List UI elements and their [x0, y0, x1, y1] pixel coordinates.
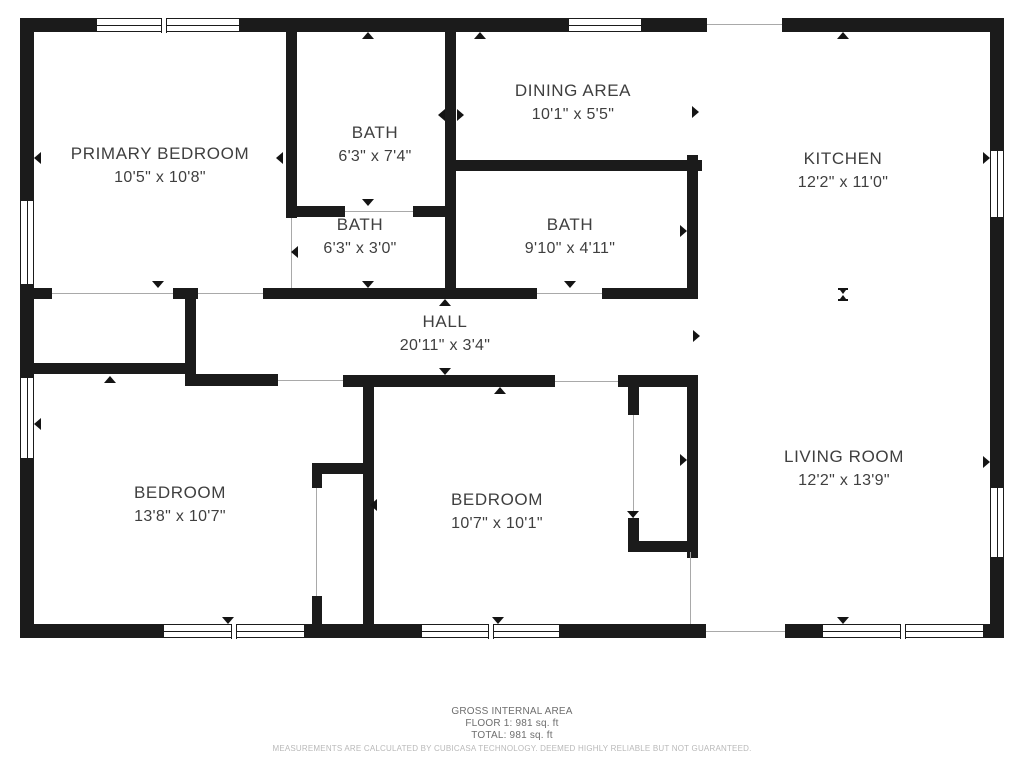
opening-marker-icon [222, 617, 234, 624]
room-label-bath-middle: BATH 9'10" x 4'11" [525, 212, 615, 260]
wall-closet [628, 387, 639, 415]
opening-marker-icon [492, 617, 504, 624]
open-boundary-marker-icon [838, 288, 848, 301]
room-label-bedroom-middle: BEDROOM 10'7" x 10'1" [451, 487, 543, 535]
room-label-primary-bedroom: PRIMARY BEDROOM 10'5" x 10'8" [71, 141, 249, 189]
opening-line [706, 631, 785, 632]
window-divider [161, 18, 167, 33]
wall-exterior-left [20, 18, 34, 200]
wall-interior [343, 375, 555, 387]
floor-area-line: FLOOR 1: 981 sq. ft [0, 718, 1024, 730]
room-dims: 12'2" x 13'9" [784, 469, 904, 492]
wall-interior [34, 288, 52, 299]
room-dims: 9'10" x 4'11" [525, 237, 615, 260]
room-name: HALL [400, 309, 490, 334]
wall-closet [639, 541, 691, 552]
opening-marker-icon [34, 418, 41, 430]
opening-marker-icon [152, 281, 164, 288]
room-dims: 20'11" x 3'4" [400, 334, 490, 357]
opening-line [278, 380, 343, 381]
room-label-bedroom-left: BEDROOM 13'8" x 10'7" [134, 480, 226, 528]
room-dims: 13'8" x 10'7" [134, 505, 226, 528]
opening-marker-icon [439, 368, 451, 375]
wall-closet [312, 596, 322, 624]
opening-line [52, 293, 173, 294]
opening-marker-icon [362, 281, 374, 288]
wall-interior [602, 288, 698, 299]
room-name: BEDROOM [134, 480, 226, 505]
opening-marker-icon [474, 32, 486, 39]
window-divider [900, 624, 906, 639]
window [822, 624, 984, 638]
wall-interior [263, 288, 537, 299]
opening-line [537, 293, 602, 294]
room-label-dining-area: DINING AREA 10'1" x 5'5" [515, 78, 631, 126]
wall-closet [628, 518, 639, 552]
gross-internal-area-title: GROSS INTERNAL AREA [0, 706, 1024, 718]
wall-interior [687, 155, 698, 299]
wall-exterior-right [990, 18, 1004, 150]
opening-marker-icon [837, 32, 849, 39]
opening-marker-icon [983, 456, 990, 468]
wall-interior [185, 288, 196, 375]
room-label-bath-top: BATH 6'3" x 7'4" [338, 120, 411, 168]
wall-exterior-top [642, 18, 707, 32]
opening-marker-icon [362, 199, 374, 206]
room-dims: 6'3" x 7'4" [338, 145, 411, 168]
opening-line [707, 24, 782, 25]
opening-marker-icon [104, 376, 116, 383]
opening-marker-icon [439, 299, 451, 306]
room-name: BATH [525, 212, 615, 237]
total-area-line: TOTAL: 981 sq. ft [0, 730, 1024, 742]
opening-marker-icon [627, 511, 639, 518]
footer: GROSS INTERNAL AREA FLOOR 1: 981 sq. ft … [0, 706, 1024, 754]
wall-exterior-bottom [984, 624, 1004, 638]
disclaimer-text: MEASUREMENTS ARE CALCULATED BY CUBICASA … [0, 744, 1024, 754]
room-label-kitchen: KITCHEN 12'2" x 11'0" [798, 146, 888, 194]
window [990, 150, 1004, 218]
opening-marker-icon [983, 152, 990, 164]
wall-closet [312, 463, 363, 474]
wall-exterior-bottom [785, 624, 822, 638]
window [990, 487, 1004, 558]
wall-interior [453, 160, 702, 171]
room-dims: 10'5" x 10'8" [71, 166, 249, 189]
opening-marker-icon [680, 454, 687, 466]
room-label-hall: HALL 20'11" x 3'4" [400, 309, 490, 357]
window [421, 624, 560, 638]
wall-exterior-bottom [20, 624, 163, 638]
wall-interior [34, 363, 196, 374]
room-dims: 10'7" x 10'1" [451, 512, 543, 535]
wall-exterior-bottom [560, 624, 706, 638]
wall-exterior-top [782, 18, 1004, 32]
wall-interior [687, 375, 698, 558]
opening-marker-icon [291, 246, 298, 258]
room-name: PRIMARY BEDROOM [71, 141, 249, 166]
room-name: DINING AREA [515, 78, 631, 103]
room-name: LIVING ROOM [784, 444, 904, 469]
room-dims: 6'3" x 3'0" [323, 237, 396, 260]
opening-marker-icon [693, 330, 700, 342]
room-name: KITCHEN [798, 146, 888, 171]
room-label-living-room: LIVING ROOM 12'2" x 13'9" [784, 444, 904, 492]
wall-exterior-top [240, 18, 568, 32]
opening-marker-icon [692, 106, 699, 118]
room-name: BEDROOM [451, 487, 543, 512]
opening-line [690, 552, 691, 624]
room-name: BATH [338, 120, 411, 145]
wall-interior [618, 375, 698, 387]
wall-interior [185, 374, 278, 386]
window [96, 18, 240, 32]
window [568, 18, 642, 32]
wall-closet [312, 474, 322, 488]
opening-marker-icon [457, 109, 464, 121]
wall-exterior-right [990, 218, 1004, 487]
window-divider [488, 624, 494, 639]
window [20, 377, 34, 459]
opening-marker-icon [680, 225, 687, 237]
opening-marker-icon [564, 281, 576, 288]
window-divider [231, 624, 237, 639]
room-label-bath-small: BATH 6'3" x 3'0" [323, 212, 396, 260]
wall-exterior-left [20, 459, 34, 638]
opening-marker-icon [34, 152, 41, 164]
room-dims: 12'2" x 11'0" [798, 171, 888, 194]
wall-exterior-left [20, 285, 34, 377]
opening-marker-icon [370, 499, 377, 511]
wall-interior [286, 32, 297, 218]
opening-line [555, 381, 618, 382]
opening-marker-icon [837, 617, 849, 624]
room-dims: 10'1" x 5'5" [515, 103, 631, 126]
opening-line [316, 488, 317, 596]
opening-marker-icon [494, 387, 506, 394]
window [20, 200, 34, 285]
floor-plan: PRIMARY BEDROOM 10'5" x 10'8" BATH 6'3" … [0, 0, 1024, 768]
opening-marker-icon [276, 152, 283, 164]
room-name: BATH [323, 212, 396, 237]
opening-line [633, 415, 634, 518]
opening-line [198, 293, 263, 294]
opening-marker-icon [438, 109, 445, 121]
window [163, 624, 305, 638]
wall-interior [413, 206, 445, 217]
opening-marker-icon [362, 32, 374, 39]
